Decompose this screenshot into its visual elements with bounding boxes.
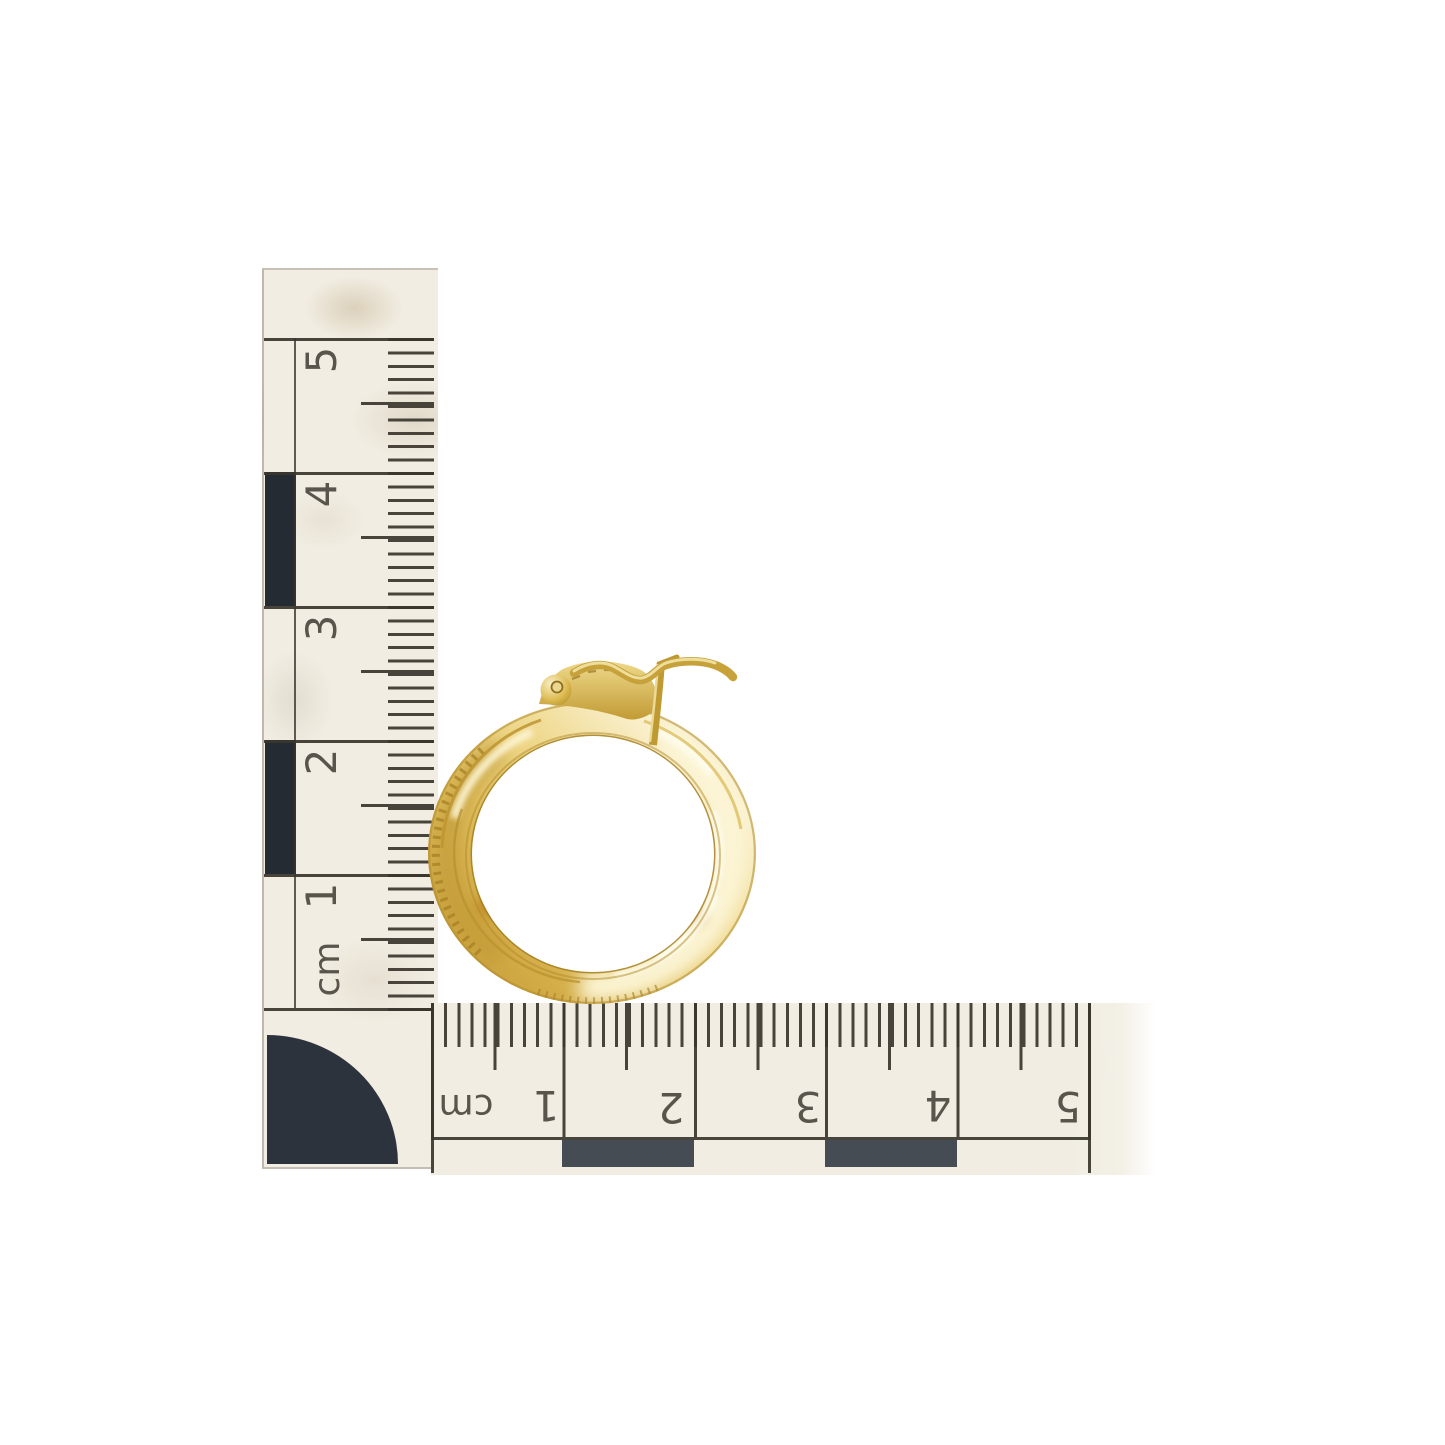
hinge-ball-hole xyxy=(552,682,563,693)
earring-photo xyxy=(0,0,1445,1445)
photo-stage: 5 4 3 2 1 cm cm 1 2 3 4 5 xyxy=(0,0,1445,1445)
